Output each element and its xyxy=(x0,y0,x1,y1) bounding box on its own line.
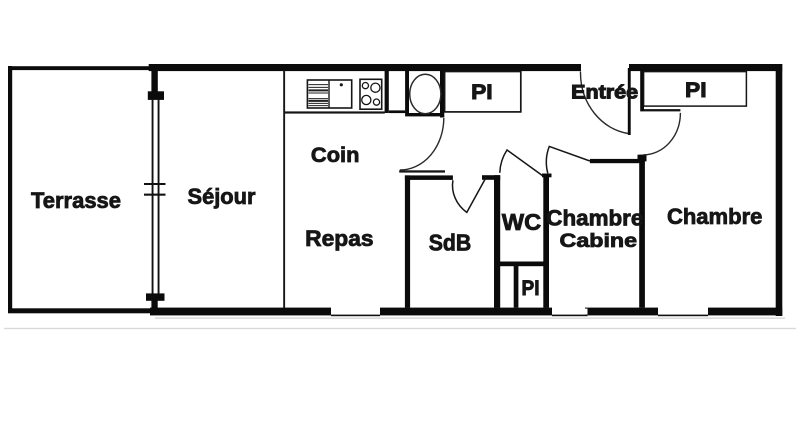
svg-text:PI: PI xyxy=(685,78,707,102)
svg-text:Séjour: Séjour xyxy=(188,184,256,209)
svg-text:SdB: SdB xyxy=(429,230,472,256)
svg-text:PI: PI xyxy=(522,276,540,300)
svg-text:Repas: Repas xyxy=(305,226,374,251)
svg-text:Terrasse: Terrasse xyxy=(31,188,121,213)
svg-text:Chambre: Chambre xyxy=(546,205,643,230)
svg-text:Cabine: Cabine xyxy=(560,230,638,252)
svg-text:WC: WC xyxy=(502,209,542,235)
svg-text:Coin: Coin xyxy=(311,144,360,167)
svg-text:Chambre: Chambre xyxy=(667,204,763,229)
svg-text:PI: PI xyxy=(471,80,493,104)
svg-text:Entrée: Entrée xyxy=(571,82,638,104)
